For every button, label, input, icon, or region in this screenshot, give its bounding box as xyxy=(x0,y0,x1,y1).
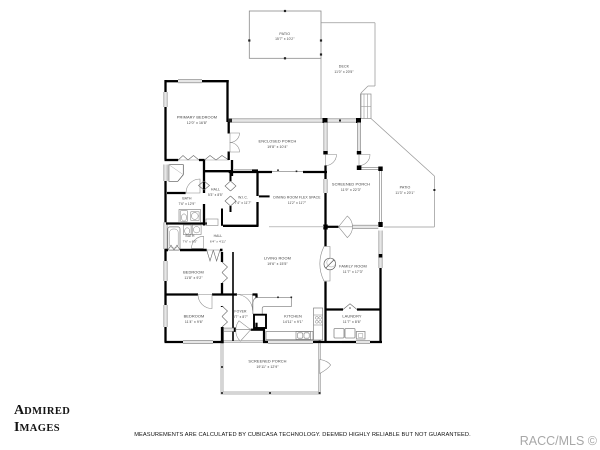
svg-text:BEDROOM: BEDROOM xyxy=(183,270,204,275)
svg-text:BATH: BATH xyxy=(182,197,192,201)
svg-text:14'11" x 9'1": 14'11" x 9'1" xyxy=(283,320,304,324)
svg-text:BEDROOM: BEDROOM xyxy=(184,314,205,319)
svg-text:11'2" x 11'7": 11'2" x 11'7" xyxy=(288,201,306,205)
svg-text:PATIO: PATIO xyxy=(400,186,411,190)
svg-text:DECK: DECK xyxy=(339,65,350,69)
svg-text:ENCLOSED PORCH: ENCLOSED PORCH xyxy=(259,139,297,144)
svg-text:11'0" x 20'5": 11'0" x 20'5" xyxy=(334,70,354,74)
svg-text:HALL: HALL xyxy=(211,188,220,192)
svg-text:FAMILY ROOM: FAMILY ROOM xyxy=(339,264,367,269)
svg-text:11'9" x 22'3": 11'9" x 22'3" xyxy=(341,188,362,192)
svg-text:HALL: HALL xyxy=(214,234,223,238)
svg-text:PATIO: PATIO xyxy=(279,32,290,36)
svg-text:19'8" x 10'4": 19'8" x 10'4" xyxy=(267,145,288,149)
svg-text:KITCHEN: KITCHEN xyxy=(284,314,302,319)
svg-text:SCREENED PORCH: SCREENED PORCH xyxy=(332,182,370,187)
svg-text:SCREENED PORCH: SCREENED PORCH xyxy=(248,359,286,364)
svg-text:11'3" x 20'1": 11'3" x 20'1" xyxy=(395,191,415,195)
svg-text:19'6" x 15'5": 19'6" x 15'5" xyxy=(267,262,288,266)
svg-text:LAUNDRY: LAUNDRY xyxy=(342,314,362,319)
svg-text:11'7" x 8'6": 11'7" x 8'6" xyxy=(343,320,362,324)
svg-text:15'7" x 10'2": 15'7" x 10'2" xyxy=(275,37,295,41)
svg-text:W.I.C.: W.I.C. xyxy=(238,196,248,200)
svg-text:PRIMARY BEDROOM: PRIMARY BEDROOM xyxy=(177,115,217,120)
svg-text:7'4" x 11'7": 7'4" x 11'7" xyxy=(235,201,252,205)
svg-text:11'7" x 17'3": 11'7" x 17'3" xyxy=(343,270,364,274)
svg-text:11'8" x 9'2": 11'8" x 9'2" xyxy=(184,276,203,280)
svg-text:11'4" x 9'6": 11'4" x 9'6" xyxy=(185,320,204,324)
svg-text:6'4" x 4'11": 6'4" x 4'11" xyxy=(210,239,226,243)
svg-text:8'7" x 8'7": 8'7" x 8'7" xyxy=(233,315,248,319)
svg-text:19'11" x 12'9": 19'11" x 12'9" xyxy=(256,365,279,369)
svg-text:7'6" x 6'5": 7'6" x 6'5" xyxy=(183,239,198,243)
svg-text:5'3" x 8'5": 5'3" x 8'5" xyxy=(208,193,223,197)
svg-text:LIVING ROOM: LIVING ROOM xyxy=(264,256,291,261)
svg-text:BATH: BATH xyxy=(186,234,195,238)
svg-text:12'0" x 16'8": 12'0" x 16'8" xyxy=(187,121,208,125)
svg-text:FOYER: FOYER xyxy=(234,310,247,314)
svg-text:7'6" x 12'9": 7'6" x 12'9" xyxy=(179,202,196,206)
svg-text:DINING ROOM FLEX SPACE: DINING ROOM FLEX SPACE xyxy=(273,196,321,200)
